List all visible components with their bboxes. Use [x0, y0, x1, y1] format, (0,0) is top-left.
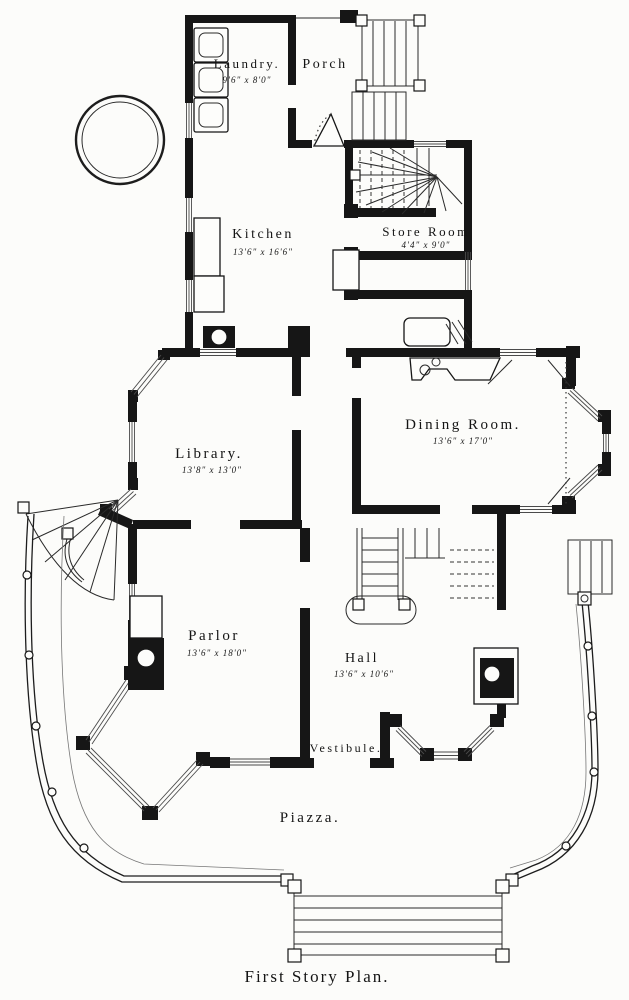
dims-dining-room: 13'6" x 17'0" [433, 436, 493, 446]
floor-plan-sheet: Laundry. 9'6" x 8'0" Porch Kitchen 13'6"… [0, 0, 629, 1000]
cistern-circle [76, 96, 164, 184]
side-steps-right [568, 540, 612, 605]
label-laundry: Laundry. [214, 56, 280, 71]
plan-caption: First Story Plan. [245, 967, 390, 986]
label-vestibule: Vestibule. [310, 741, 383, 755]
label-porch: Porch [302, 57, 347, 72]
dining-sideboard [410, 358, 500, 380]
porch-stairs [352, 15, 425, 140]
front-steps [288, 880, 509, 962]
hall-fireplace [474, 648, 518, 704]
label-kitchen: Kitchen [232, 227, 294, 242]
floor-plan-drawing: Laundry. 9'6" x 8'0" Porch Kitchen 13'6"… [0, 0, 629, 1000]
label-dining-room: Dining Room. [405, 417, 521, 433]
dims-kitchen: 13'6" x 16'6" [233, 247, 293, 257]
main-top-wall [162, 348, 578, 357]
label-store-room: Store Room [382, 224, 469, 239]
main-staircase [346, 528, 494, 624]
library-walls [98, 350, 302, 529]
back-stairs [350, 148, 462, 214]
parlor-fireplace [128, 596, 164, 690]
label-parlor: Parlor [188, 628, 240, 644]
label-piazza: Piazza. [280, 810, 340, 826]
label-library: Library. [175, 446, 243, 462]
parlor-walls [76, 524, 310, 820]
porch-kitchen-door [314, 114, 344, 146]
dims-laundry: 9'6" x 8'0" [223, 75, 272, 85]
hall-walls [388, 514, 506, 761]
dims-library: 13'8" x 13'0" [182, 465, 242, 475]
dims-parlor: 13'6" x 18'0" [187, 648, 247, 658]
dims-store-room: 4'4" x 9'0" [402, 240, 451, 250]
label-hall: Hall [345, 651, 379, 666]
dims-hall: 13'6" x 10'6" [334, 669, 394, 679]
